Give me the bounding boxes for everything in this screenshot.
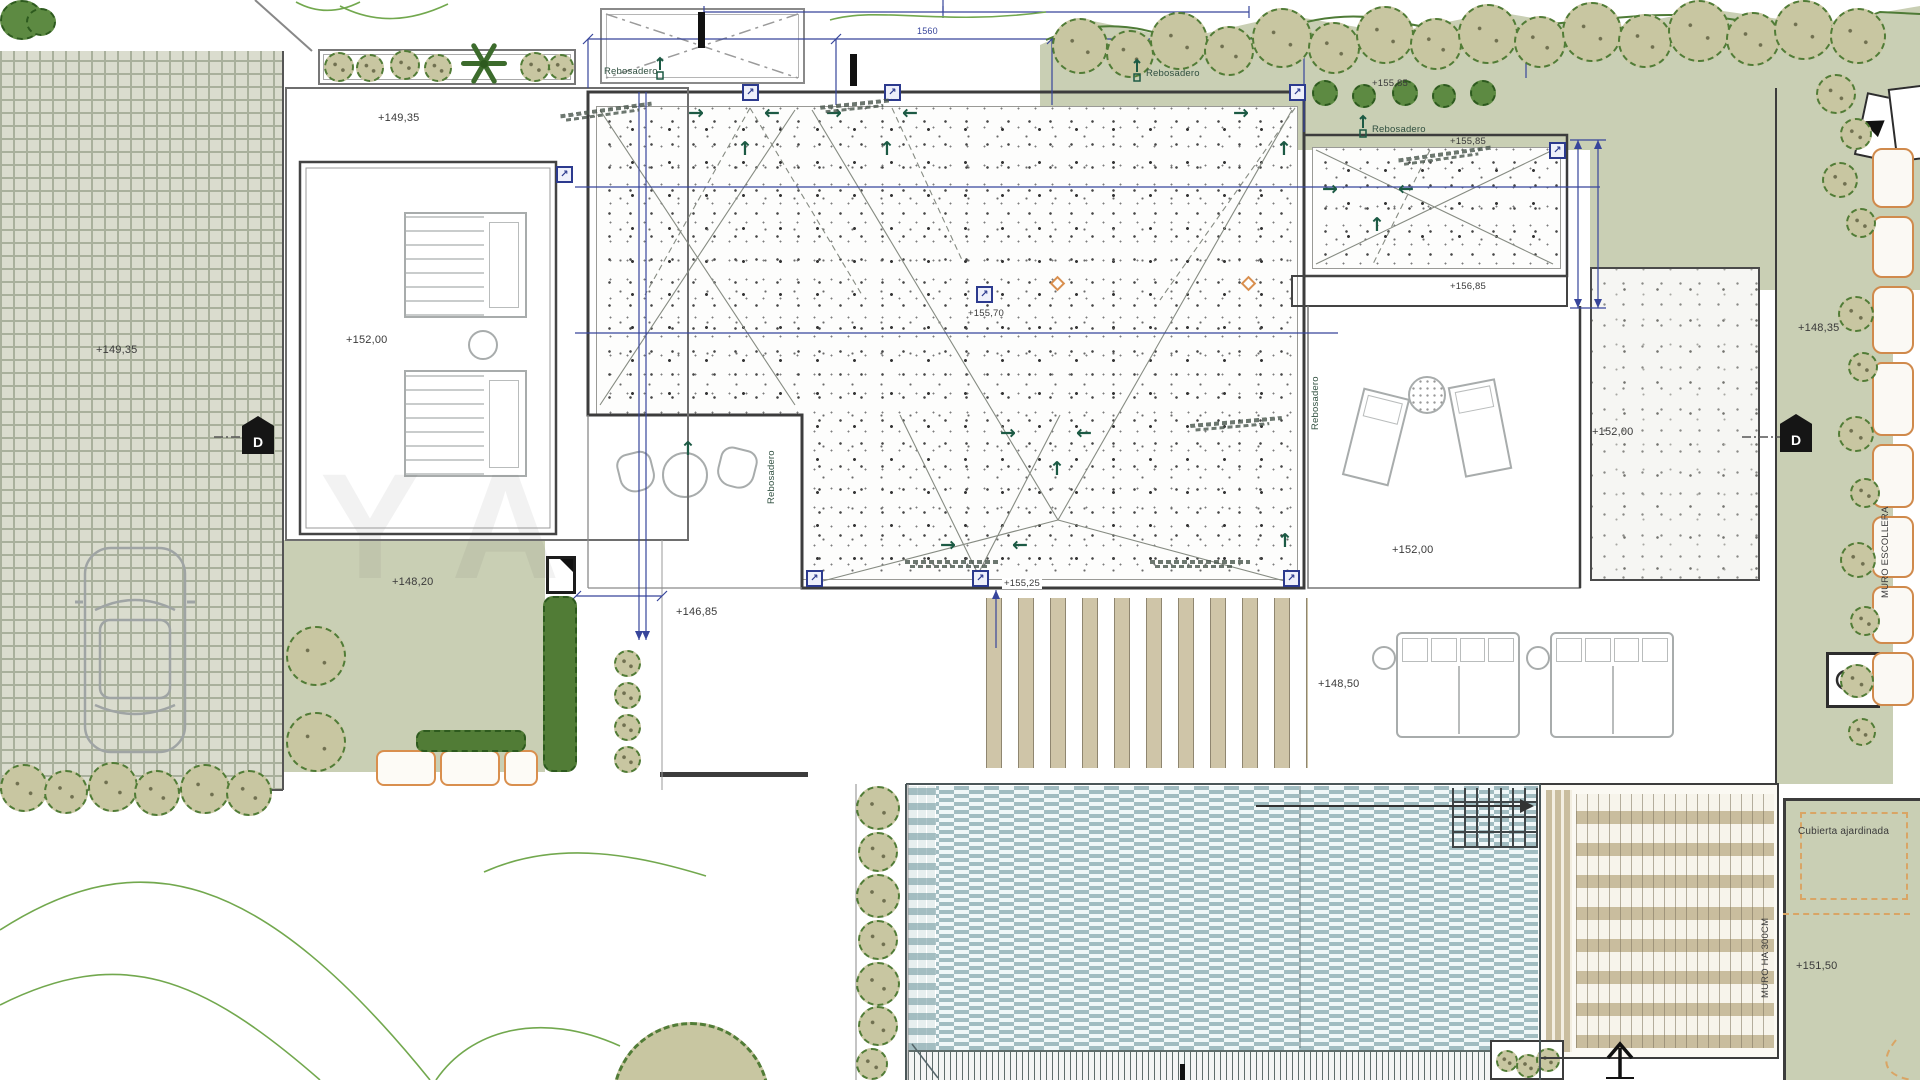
bush-icon [858,1006,898,1046]
bush-icon [614,714,641,741]
tree-icon [226,770,272,816]
wing-roof-gravel [1312,147,1561,269]
slope-arrow-icon: → [940,536,956,555]
tree-icon [286,712,346,772]
slope-arrow-icon: ↑ [1277,532,1293,551]
double-lounger [1396,632,1520,738]
site-plan-canvas: ↗ ↗ ↗ ↗ ↗ ↗ ↗ ↗ ↗ → ← ↑ → ← ↑ → ↑ → ← ↑ … [0,0,1920,1080]
rebosadero-label: Rebosadero [1372,124,1426,135]
bush-icon [1848,352,1878,382]
tree-icon [1356,6,1414,64]
bush-icon [1838,416,1874,452]
slope-arrow-icon: → [1322,180,1338,199]
dotted-table [1408,376,1446,414]
tree-icon [44,770,88,814]
deck-arrow-icon [1600,1038,1640,1080]
elevation-label: +155,25 [1002,578,1042,589]
elevation-label: +148,35 [1798,322,1839,334]
tree-icon [0,764,48,812]
tree-icon [1204,26,1254,76]
tree-icon [1150,12,1208,70]
tree-icon [356,54,384,82]
lounger-divider [1612,666,1614,734]
slope-arrow-icon: ← [902,104,918,123]
elevation-label: +155,85 [1372,78,1408,89]
tree-icon [1774,0,1834,60]
slope-arrow-icon: ← [1398,180,1414,199]
lounger [1448,378,1513,477]
pool-overflow-band [908,1050,1538,1080]
elevation-label: +148,20 [392,576,433,588]
bush-icon [856,1048,888,1080]
shrub-strip-horizontal [416,730,526,752]
bush-icon [1850,478,1880,508]
double-lounger [1550,632,1674,738]
drain-marker: ↗ [1283,570,1300,587]
tree-icon [1252,8,1312,68]
slope-arrow-icon: ↑ [1276,140,1292,159]
palm-icon [460,40,508,88]
bush-icon [1838,296,1874,332]
tree-icon [1458,4,1518,64]
tree-icon [286,626,346,686]
slope-arrow-icon: → [1000,424,1016,443]
elevation-label: +152,00 [1592,426,1633,438]
car-icon [70,540,200,760]
main-roof-gravel [596,106,1298,580]
pool-stairs [1452,788,1538,848]
rebosadero-icon [1357,114,1369,140]
tree-icon [1668,0,1730,62]
chair [614,448,659,496]
elevation-label: +146,85 [676,606,717,618]
deck-planks [1546,790,1572,1052]
elevation-label: +151,50 [1796,960,1837,972]
bush-icon [614,650,641,677]
pool-water [908,786,1538,1050]
garden-planter [504,750,538,786]
chair [714,444,761,492]
tree-icon [1052,18,1108,74]
band-outline [1292,276,1567,306]
tree-icon [1562,2,1622,62]
sunbed-pillow [489,222,519,308]
rebosadero-label: Rebosadero [604,66,658,77]
large-tree-icon [612,1022,770,1080]
escollera-rock [1872,216,1914,278]
illegible-note [905,560,1001,564]
pool-wet-edge [908,786,936,1050]
edge-tick [1180,1064,1185,1080]
drain-marker: ↗ [972,570,989,587]
cubierta-label: Cubierta ajardinada [1798,826,1889,837]
sunbed-slats [406,214,484,316]
illegible-note [1150,560,1250,564]
drain-marker: ↗ [556,166,573,183]
tree-icon [424,54,452,82]
side-table [1526,646,1550,670]
corner-diagonal [255,0,312,51]
garden-planter [440,750,500,786]
elevation-label: +155,70 [968,308,1004,319]
slope-arrow-icon: ← [764,104,780,123]
deck-planter [1490,1040,1564,1080]
side-table [468,330,498,360]
lounger-pillow [1363,395,1403,425]
bush-icon [614,746,641,773]
pillow-row [1402,638,1514,662]
garden-planter [376,750,436,786]
slope-arrow-icon: → [688,104,704,123]
elevation-label: +152,00 [346,334,387,346]
bush-icon [1312,80,1338,106]
tree-icon [1308,22,1360,74]
slope-arrow-icon: ↑ [879,140,895,159]
escollera-rock [1872,362,1914,436]
muro-ha-label: MURO HA 300CM [1760,870,1771,998]
slope-arrow-icon: → [1233,104,1249,123]
watermark: YA [320,440,605,613]
tree-icon [1514,16,1566,68]
shrub-strip-vertical [543,596,577,772]
bush-icon [856,786,900,830]
rebosadero-label: Rebosadero [1146,68,1200,79]
rebosadero-label-vertical: Rebosadero [766,424,777,504]
rebosadero-icon [1131,58,1143,84]
tree-icon [1726,12,1780,66]
pillow-row [1556,638,1668,662]
elevation-label: +149,35 [96,344,137,356]
bush-icon [858,920,898,960]
slope-arrow-icon: ← [1076,424,1092,443]
tree-icon [88,762,138,812]
chimney-tick [850,54,857,86]
bush-icon [856,874,900,918]
rebosadero-label-vertical: Rebosadero [1310,338,1321,430]
drain-marker: ↗ [1549,142,1566,159]
tree-icon [134,770,180,816]
bush-icon [1432,84,1456,108]
escollera-rock [1872,148,1914,208]
escollera-rock [1872,286,1914,354]
tree-icon [1830,8,1886,64]
deck-grid [1576,794,1774,1048]
elevation-label: +156,85 [1450,281,1486,292]
side-table [1372,646,1396,670]
tree-icon [548,54,574,80]
lounger-pillow [1455,385,1495,413]
slope-arrow-icon: ↑ [1369,216,1385,235]
bush-icon [1840,664,1874,698]
elevation-label: +149,35 [378,112,419,124]
bush-icon [1848,718,1876,746]
bush-icon [1846,208,1876,238]
drain-marker: ↗ [806,570,823,587]
bush-icon [26,8,56,36]
drain-marker: ↗ [1289,84,1306,101]
tree-icon [520,52,550,82]
elevation-label: +155,85 [1450,136,1486,147]
dimension-value: 1560 [914,26,941,36]
tree-icon [1618,14,1672,68]
green-roof-dashed-line [1783,913,1910,915]
tree-icon [390,50,420,80]
tree-icon [1410,18,1462,70]
slope-arrow-icon: ↑ [737,140,753,159]
elevation-label: +152,00 [1392,544,1433,556]
slope-arrow-icon: ↑ [680,440,696,459]
slope-arrow-icon: ← [1012,536,1028,555]
slope-arrow-icon: ↑ [1049,460,1065,479]
lounger-divider [1458,666,1460,734]
elevation-label: +148,50 [1318,678,1359,690]
escollera-rock [1872,652,1914,706]
drain-marker: ↗ [976,286,993,303]
lounger [1342,388,1410,487]
muro-escollera-label: MURO ESCOLLERA [1880,466,1891,598]
bush-icon [1822,162,1858,198]
drain-marker: ↗ [742,84,759,101]
bush-icon [1840,542,1876,578]
chimney-tick [698,12,705,48]
tree-icon [180,764,230,814]
terrace-step [660,772,808,777]
sunbed [404,212,527,318]
bush-icon [614,682,641,709]
bush-icon [858,832,898,872]
escollera-rock [1872,516,1914,578]
bush-icon [1850,606,1880,636]
tree-icon [324,52,354,82]
bush-icon [856,962,900,1006]
bush-icon [1840,118,1872,150]
pergola-slats [986,598,1308,768]
gravel-patio-right [1590,267,1760,581]
bush-icon [1816,74,1856,114]
bush-icon [1470,80,1496,106]
